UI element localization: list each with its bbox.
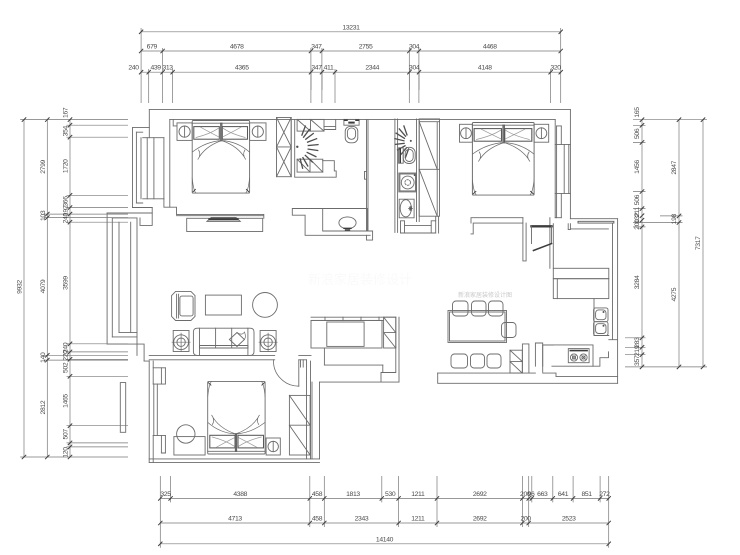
svg-text:2692: 2692 xyxy=(473,516,487,523)
svg-text:458: 458 xyxy=(312,516,323,523)
svg-text:200: 200 xyxy=(634,219,641,230)
svg-text:357: 357 xyxy=(634,355,641,366)
svg-text:272: 272 xyxy=(599,491,610,498)
svg-text:198: 198 xyxy=(671,213,678,224)
svg-text:9932: 9932 xyxy=(17,280,24,294)
svg-text:1456: 1456 xyxy=(634,160,641,174)
svg-text:2523: 2523 xyxy=(562,516,576,523)
svg-text:4468: 4468 xyxy=(483,44,497,51)
svg-text:4713: 4713 xyxy=(228,516,242,523)
svg-text:4365: 4365 xyxy=(235,65,249,72)
svg-text:1211: 1211 xyxy=(411,491,425,498)
svg-text:1813: 1813 xyxy=(346,491,360,498)
svg-text:4275: 4275 xyxy=(671,287,678,301)
svg-text:439: 439 xyxy=(150,65,161,72)
svg-text:240: 240 xyxy=(128,65,139,72)
svg-text:507: 507 xyxy=(63,429,70,440)
svg-text:96: 96 xyxy=(528,491,535,498)
svg-text:347: 347 xyxy=(311,65,322,72)
svg-text:347: 347 xyxy=(311,44,322,51)
svg-text:354: 354 xyxy=(63,125,70,136)
svg-text:4678: 4678 xyxy=(230,44,244,51)
svg-text:679: 679 xyxy=(147,44,158,51)
svg-text:4079: 4079 xyxy=(40,279,47,293)
svg-text:240: 240 xyxy=(63,212,70,223)
svg-text:2799: 2799 xyxy=(40,159,47,173)
svg-text:新浪家居装修设计: 新浪家居装修设计 xyxy=(308,272,412,287)
svg-text:103: 103 xyxy=(40,210,47,221)
svg-text:4148: 4148 xyxy=(478,65,492,72)
svg-text:1720: 1720 xyxy=(63,159,70,173)
svg-text:320: 320 xyxy=(550,65,561,72)
svg-text:313: 313 xyxy=(162,65,173,72)
svg-text:851: 851 xyxy=(581,491,592,498)
svg-text:663: 663 xyxy=(537,491,548,498)
svg-text:13231: 13231 xyxy=(342,24,360,31)
svg-text:165: 165 xyxy=(634,107,641,118)
svg-text:506: 506 xyxy=(634,194,641,205)
svg-text:140: 140 xyxy=(40,352,47,363)
svg-text:219: 219 xyxy=(634,345,641,356)
svg-text:325: 325 xyxy=(160,491,171,498)
svg-text:7317: 7317 xyxy=(695,236,702,250)
svg-text:304: 304 xyxy=(409,44,420,51)
svg-text:3599: 3599 xyxy=(63,276,70,290)
svg-text:新浪家居装修设计图: 新浪家居装修设计图 xyxy=(458,291,512,299)
svg-text:458: 458 xyxy=(312,491,323,498)
svg-text:200: 200 xyxy=(520,516,531,523)
svg-text:304: 304 xyxy=(409,65,420,72)
svg-text:2812: 2812 xyxy=(40,400,47,414)
svg-text:1465: 1465 xyxy=(63,394,70,408)
svg-text:530: 530 xyxy=(385,491,396,498)
svg-text:220: 220 xyxy=(63,350,70,361)
svg-text:2847: 2847 xyxy=(671,160,678,174)
svg-text:502: 502 xyxy=(63,362,70,373)
svg-text:4388: 4388 xyxy=(233,491,247,498)
svg-text:167: 167 xyxy=(63,107,70,118)
svg-text:3284: 3284 xyxy=(634,275,641,289)
svg-text:2755: 2755 xyxy=(359,44,373,51)
svg-text:120: 120 xyxy=(63,447,70,458)
svg-text:1211: 1211 xyxy=(411,516,425,523)
svg-text:641: 641 xyxy=(558,491,569,498)
svg-text:366: 366 xyxy=(63,196,70,207)
svg-text:14140: 14140 xyxy=(376,536,394,543)
svg-text:2344: 2344 xyxy=(365,65,379,72)
svg-text:2692: 2692 xyxy=(473,491,487,498)
svg-text:506: 506 xyxy=(634,128,641,139)
svg-text:2343: 2343 xyxy=(355,516,369,523)
svg-text:411: 411 xyxy=(324,65,334,72)
